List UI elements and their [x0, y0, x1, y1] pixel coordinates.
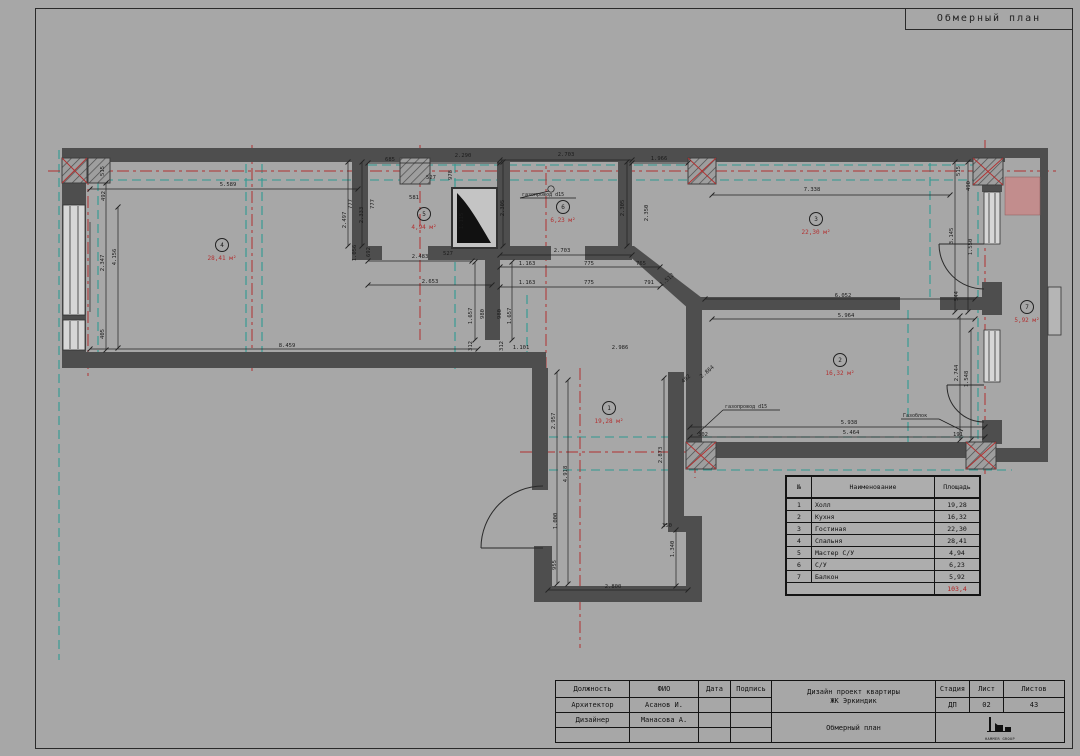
room-name: Спальня: [812, 535, 935, 547]
dimension-label: 1.000: [553, 513, 559, 530]
room-area-label: 6,23 м²: [550, 217, 575, 224]
tb-role-header: Должность: [556, 681, 630, 698]
dimension-label: 2.703: [554, 248, 571, 254]
tb-name-3: [630, 728, 699, 743]
dimension-label: 4.156: [112, 249, 118, 266]
tb-role-1: Архитектор: [556, 698, 630, 713]
dimension-label: 1.340: [670, 541, 676, 558]
dimension-label: 775: [584, 261, 594, 267]
dimension-label: 2.497: [342, 212, 348, 229]
dimension-label: 1.056: [352, 245, 358, 262]
dimension-label: 1.657: [468, 308, 474, 325]
dimension-label: 302: [698, 432, 708, 438]
dimension-label: 2.986: [612, 345, 629, 351]
area-table-row: 6С/У6,23: [786, 559, 980, 571]
dimension-label: 515: [100, 166, 106, 176]
tb-project: Дизайн проект квартиры ЖК Эркиндик: [772, 681, 936, 713]
dimension-label: 5.964: [838, 313, 855, 319]
tb-role-3: [556, 728, 630, 743]
room-area-label: 28,41 м²: [208, 255, 237, 262]
dimension-label: 1.548: [964, 371, 970, 388]
room-number: 3: [814, 216, 818, 223]
balcony-highlight: [1005, 177, 1040, 215]
room-no: 2: [786, 511, 812, 523]
room-area-label: 4,94 м²: [411, 224, 436, 231]
area-table-row: 4Спальня28,41: [786, 535, 980, 547]
dimension-label: 5.938: [841, 420, 858, 426]
tb-sheets-header: Листов: [1004, 681, 1065, 698]
room-area: 16,32: [935, 511, 981, 523]
room-number: 2: [838, 357, 842, 364]
dimension-label: 775: [584, 280, 594, 286]
col-name: Наименование: [812, 476, 935, 498]
room-number: 1: [607, 405, 611, 412]
room-area: 4,94: [935, 547, 981, 559]
dimension-label: 777: [370, 199, 376, 209]
room-area-label: 19,28 м²: [595, 418, 624, 425]
total-area: 103,4: [935, 583, 981, 596]
dimension-label: 1.163: [519, 280, 536, 286]
plan-annotation: Газоблок: [903, 412, 927, 419]
tb-sign-3: [731, 728, 772, 743]
dimension-label: 4.918: [563, 466, 569, 483]
room-area: 22,30: [935, 523, 981, 535]
area-table-header: № Наименование Площадь: [786, 476, 980, 498]
room-name: Балкон: [812, 571, 935, 583]
tb-sign-1: [731, 698, 772, 713]
tb-sign-header: Подпись: [731, 681, 772, 698]
dimension-label: 2.290: [455, 153, 472, 159]
dimension-label: 1.966: [651, 156, 668, 162]
dimension-label: 5.589: [220, 182, 237, 188]
room-area-label: 5,92 м²: [1014, 317, 1039, 324]
dimension-label: 350: [662, 523, 672, 529]
dimension-label: 2.350: [644, 205, 650, 222]
dimension-label: 544: [954, 290, 960, 301]
dimension-label: 2.347: [100, 255, 106, 272]
room-area-label: 22,30 м²: [802, 229, 831, 236]
room-area: 6,23: [935, 559, 981, 571]
dimension-label: 1.163: [519, 261, 536, 267]
dimension-label: 527: [443, 251, 453, 257]
room-name: Гостиная: [812, 523, 935, 535]
room-area: 19,28: [935, 498, 981, 511]
dimension-label: 980: [480, 309, 486, 319]
room-no: 3: [786, 523, 812, 535]
dimension-label: 955: [552, 560, 558, 570]
floor-plan: 5.5896852.2905279785812.7031.9667.3382.7…: [0, 0, 1080, 756]
dimension-label: 2.744: [954, 364, 960, 381]
tb-date-2: [699, 713, 731, 728]
tb-project-line2: ЖК Эркиндик: [772, 697, 935, 706]
plan-annotation: газопровод d15: [522, 192, 564, 198]
dimension-label: 2.483: [412, 254, 429, 260]
dimension-label: 2.873: [658, 447, 664, 464]
col-number: №: [786, 476, 812, 498]
title-block: Должность ФИО Дата Подпись Дизайн проект…: [555, 680, 1065, 743]
tb-name-1: Асанов И.: [630, 698, 699, 713]
dimension-label: 765: [636, 261, 646, 267]
dimension-label: 692: [366, 247, 372, 257]
room-area: 28,41: [935, 535, 981, 547]
dimension-label: 312: [499, 341, 505, 351]
room-number: 4: [220, 242, 224, 249]
dimension-label: 7.338: [804, 187, 821, 193]
dimension-label: 5.464: [843, 430, 860, 436]
room-name: Кухня: [812, 511, 935, 523]
room-area-label: 16,32 м²: [826, 370, 855, 377]
dimension-label: 527: [426, 175, 436, 181]
room-number: 6: [561, 204, 565, 211]
area-table-total-row: 103,4: [786, 583, 980, 596]
dimension-label: 2.305: [500, 200, 506, 217]
room-no: 1: [786, 498, 812, 511]
dimension-label: 2.957: [551, 413, 557, 430]
dimension-label: 978: [448, 170, 454, 180]
dimension-label: 980: [497, 309, 503, 319]
drawing-sheet: Обмерный план: [0, 0, 1080, 756]
area-table-row: 2Кухня16,32: [786, 511, 980, 523]
area-table-row: 5Мастер С/У4,94: [786, 547, 980, 559]
tb-role-2: Дизайнер: [556, 713, 630, 728]
dimension-label: 2.653: [422, 279, 439, 285]
dimension-label: 312: [468, 341, 474, 351]
dimension-label: 1.115: [459, 213, 465, 230]
dimension-label: 2.800: [605, 584, 622, 590]
total-label: [786, 583, 935, 596]
dimension-label: 515: [956, 166, 962, 176]
tb-name-2: Манасова А.: [630, 713, 699, 728]
tb-stage-value: ДП: [936, 698, 970, 713]
tb-project-line1: Дизайн проект квартиры: [772, 688, 935, 697]
dimension-label: 3.145: [949, 228, 955, 245]
dimension-label: 492: [101, 191, 107, 201]
room-number: 5: [422, 211, 426, 218]
dimension-label: 1.101: [513, 345, 530, 351]
dimension-label: 791: [644, 280, 654, 286]
dimension-label: 6.052: [835, 293, 852, 299]
room-name: С/У: [812, 559, 935, 571]
dimension-label: 581: [409, 195, 419, 201]
dimension-label: 1.550: [968, 239, 974, 256]
room-number: 7: [1025, 304, 1029, 311]
dimension-label: 8.459: [279, 343, 296, 349]
tb-name-header: ФИО: [630, 681, 699, 698]
area-table-row: 1Холл19,28: [786, 498, 980, 511]
area-table: № Наименование Площадь 1Холл19,282Кухня1…: [785, 475, 981, 596]
dimension-label: 1.657: [507, 308, 513, 325]
area-table-row: 7Балкон5,92: [786, 571, 980, 583]
dimension-label: 2.305: [620, 200, 626, 217]
tb-sheets-value: 43: [1004, 698, 1065, 713]
hammer-group-logo-icon: [977, 715, 1023, 737]
room-name: Мастер С/У: [812, 547, 935, 559]
dimension-label: 2.333: [359, 207, 365, 224]
dimension-label: 685: [385, 157, 395, 163]
tb-sheet-header: Лист: [970, 681, 1004, 698]
plan-annotation: газопровод d15: [725, 404, 767, 410]
tb-sheet-value: 02: [970, 698, 1004, 713]
dimension-label: 777: [348, 199, 354, 209]
dimension-label: 2.703: [558, 152, 575, 158]
room-area: 5,92: [935, 571, 981, 583]
tb-sign-2: [731, 713, 772, 728]
dimension-label: 490: [966, 181, 972, 191]
dimension-label: 405: [100, 329, 106, 339]
tb-date-header: Дата: [699, 681, 731, 698]
company-logo: HAMMER GROUP: [936, 713, 1065, 743]
tb-date-1: [699, 698, 731, 713]
room-name: Холл: [812, 498, 935, 511]
tb-date-3: [699, 728, 731, 743]
tb-drawing-name: Обмерный план: [772, 713, 936, 743]
room-no: 6: [786, 559, 812, 571]
room-no: 4: [786, 535, 812, 547]
room-no: 7: [786, 571, 812, 583]
col-area: Площадь: [935, 476, 981, 498]
dimension-label: 191: [953, 432, 963, 438]
room-no: 5: [786, 547, 812, 559]
area-table-row: 3Гостиная22,30: [786, 523, 980, 535]
logo-text: HAMMER GROUP: [936, 737, 1064, 741]
tb-stage-header: Стадия: [936, 681, 970, 698]
